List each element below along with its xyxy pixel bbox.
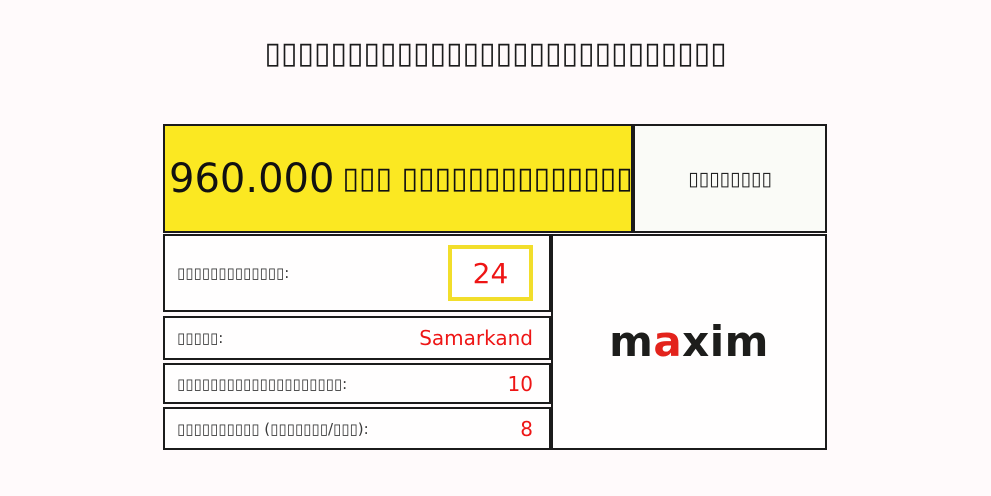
row-label-orders: ▯▯▯▯▯▯▯▯▯▯▯▯▯▯▯▯▯▯▯▯: — [177, 375, 347, 393]
flyer-page: ▯▯▯▯▯▯▯▯▯▯▯▯▯▯▯▯▯▯▯▯▯▯▯▯▯▯▯▯ 960.000 ▯▯▯… — [0, 0, 991, 496]
fare-header-cell: 960.000 ▯▯▯ ▯▯▯▯▯▯▯▯▯▯▯▯▯▯▯ — [163, 124, 633, 233]
header-side-label: ▯▯▯▯▯▯▯▯ — [688, 168, 772, 190]
row-label-rate: ▯▯▯▯▯▯▯▯▯▯ (▯▯▯▯▯▯▯/▯▯▯): — [177, 420, 369, 438]
orders-value: 10 — [508, 372, 533, 396]
row-label-city: ▯▯▯▯▯: — [177, 329, 223, 347]
info-row-orders: ▯▯▯▯▯▯▯▯▯▯▯▯▯▯▯▯▯▯▯▯: 10 — [163, 363, 551, 404]
logo-letters-xim: xim — [682, 317, 769, 366]
logo-letter-m: m — [609, 317, 653, 366]
info-row-city: ▯▯▯▯▯: Samarkand — [163, 316, 551, 360]
row-label-hours: ▯▯▯▯▯▯▯▯▯▯▯▯▯: — [177, 264, 289, 282]
info-row-rate: ▯▯▯▯▯▯▯▯▯▯ (▯▯▯▯▯▯▯/▯▯▯): 8 — [163, 407, 551, 450]
page-title: ▯▯▯▯▯▯▯▯▯▯▯▯▯▯▯▯▯▯▯▯▯▯▯▯▯▯▯▯ — [0, 36, 991, 71]
info-row-hours: ▯▯▯▯▯▯▯▯▯▯▯▯▯: 24 — [163, 234, 551, 312]
city-value: Samarkand — [419, 326, 533, 350]
fare-amount: 960.000 — [169, 156, 334, 202]
brand-cell: maxim — [551, 234, 827, 450]
hours-value-box: 24 — [448, 245, 533, 301]
fare-caption: ▯▯▯ ▯▯▯▯▯▯▯▯▯▯▯▯▯▯▯ — [342, 161, 633, 196]
maxim-logo: maxim — [609, 321, 769, 363]
rate-value: 8 — [520, 417, 533, 441]
header-side-cell: ▯▯▯▯▯▯▯▯ — [633, 124, 827, 233]
logo-letter-a-red: a — [653, 317, 682, 366]
